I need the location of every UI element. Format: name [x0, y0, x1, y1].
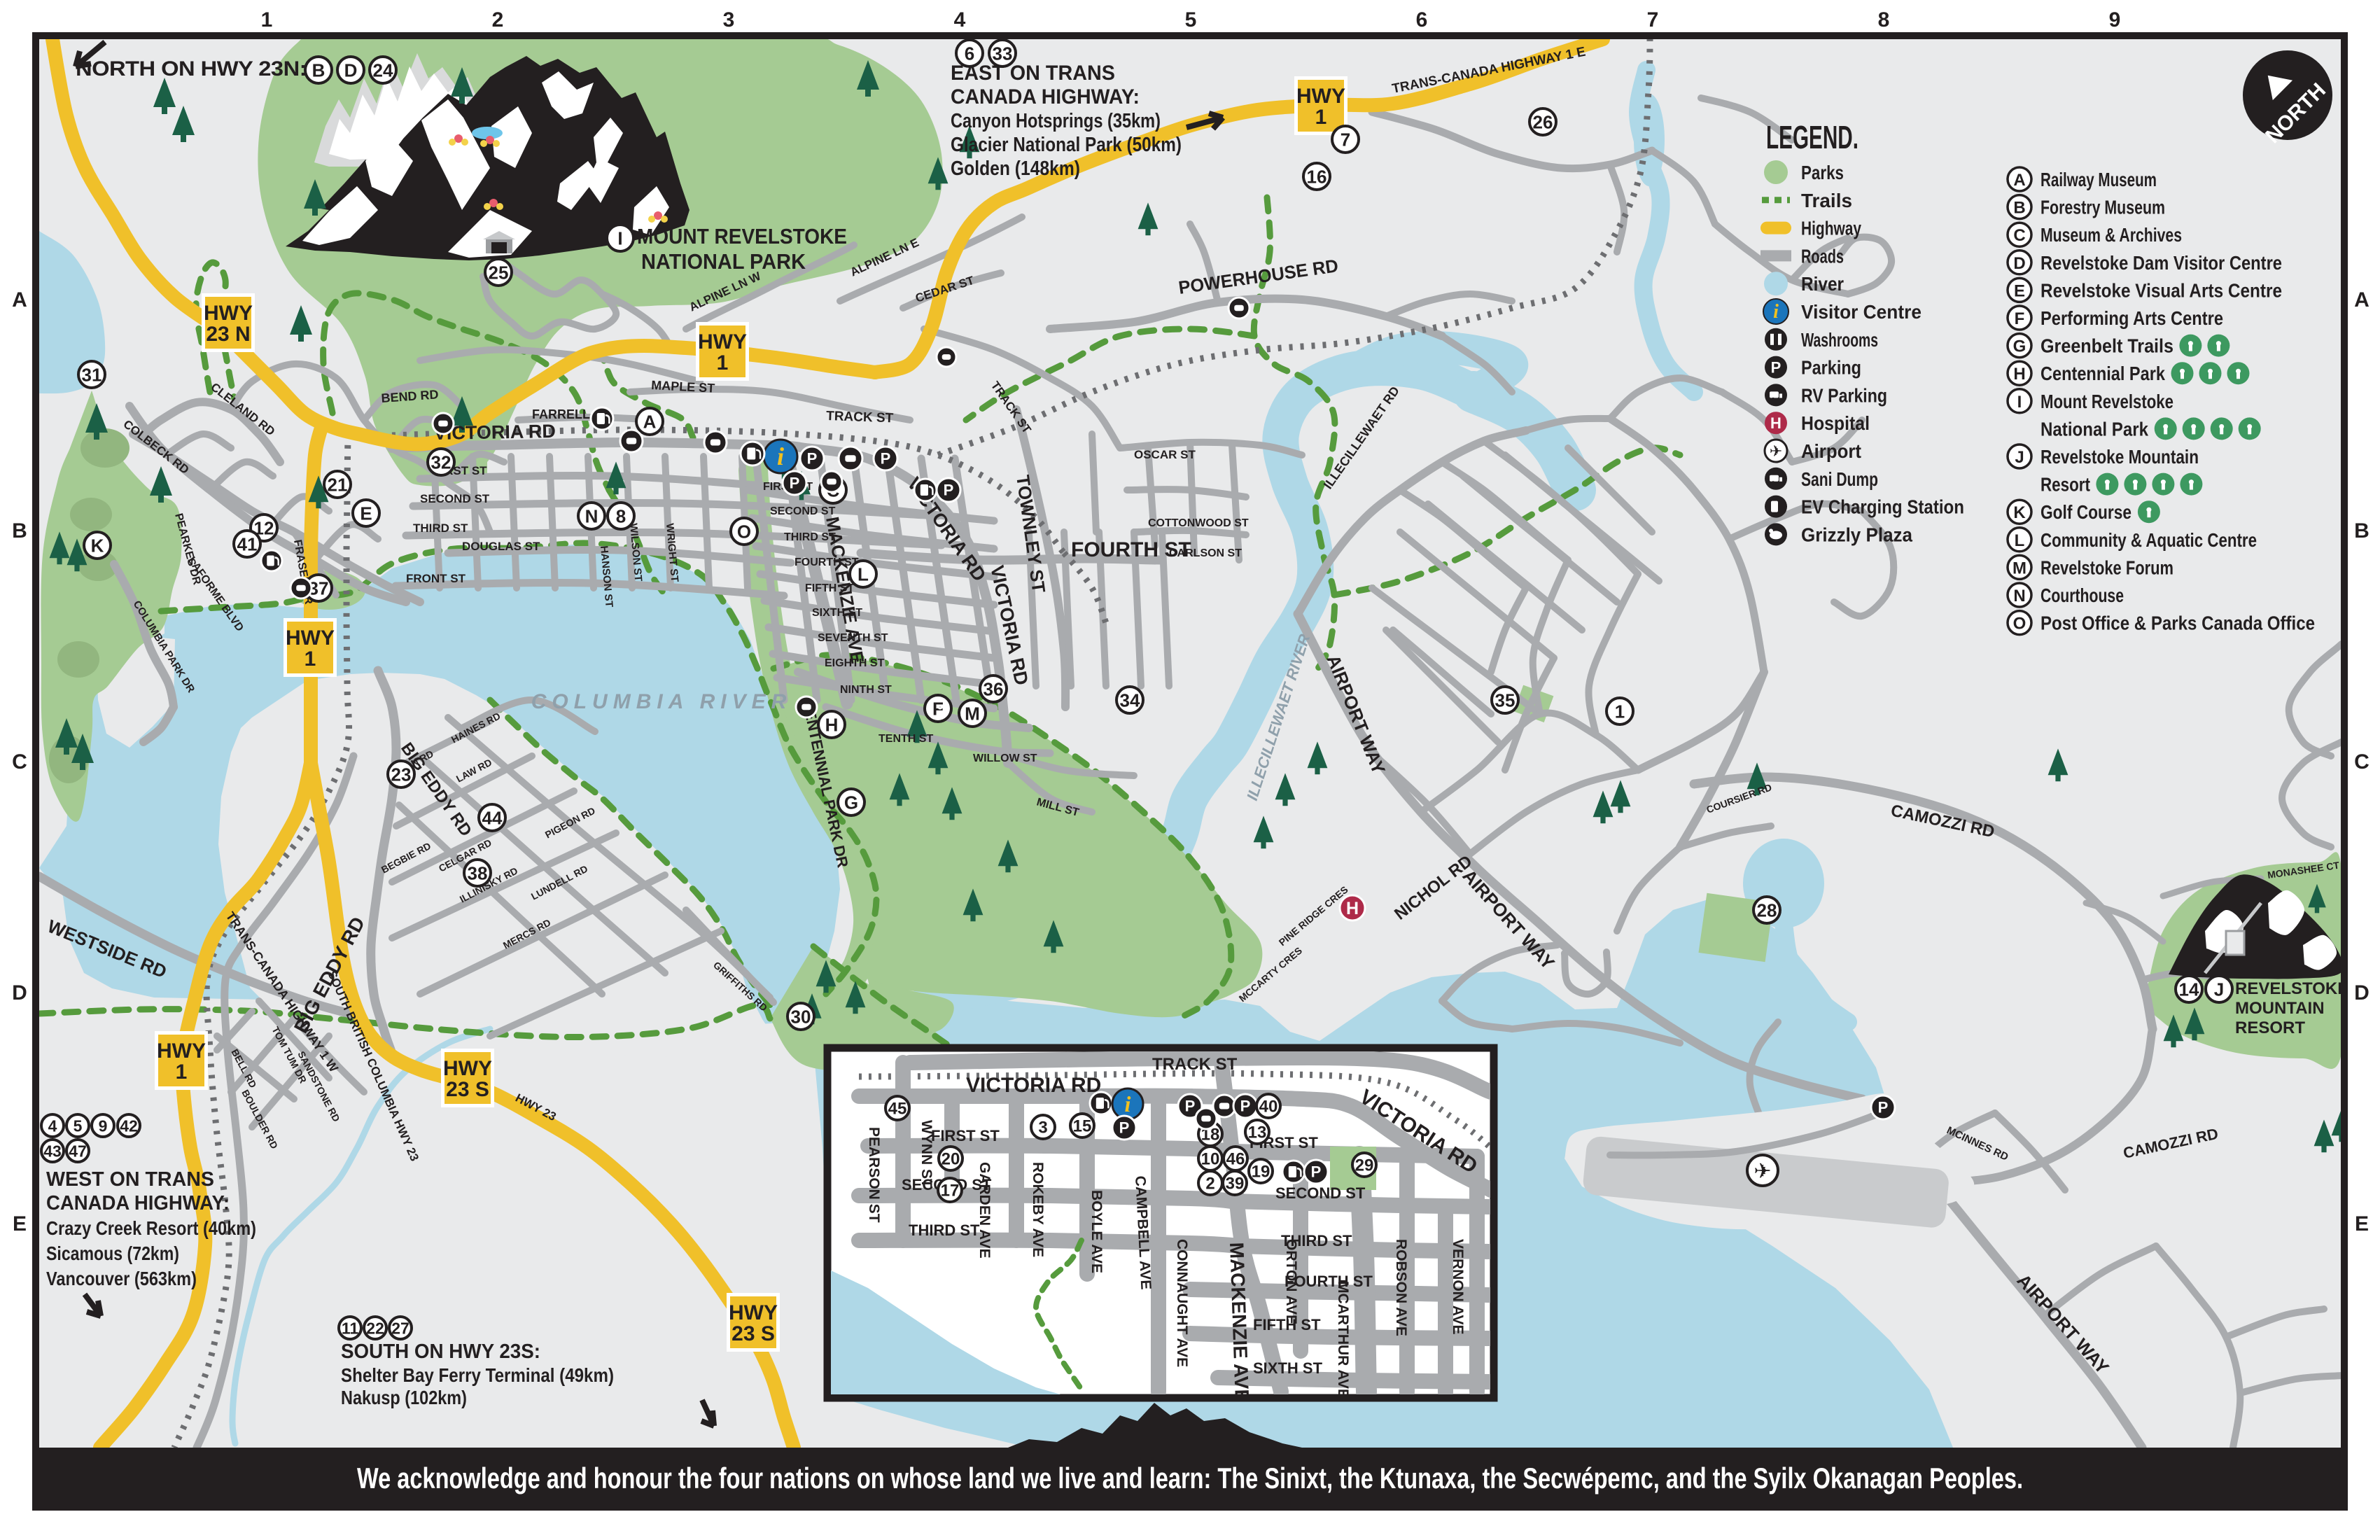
svg-text:Vancouver (563km): Vancouver (563km) — [46, 1268, 197, 1289]
svg-text:A: A — [12, 288, 27, 311]
svg-text:2: 2 — [492, 8, 504, 31]
svg-text:22: 22 — [366, 1319, 384, 1337]
svg-text:G: G — [844, 792, 858, 813]
svg-text:Highway: Highway — [1801, 218, 1861, 239]
svg-text:Grizzly Plaza: Grizzly Plaza — [1801, 524, 1912, 545]
svg-text:M: M — [2012, 559, 2026, 577]
svg-text:P: P — [1878, 1099, 1889, 1116]
svg-text:7: 7 — [1647, 8, 1659, 31]
svg-text:29: 29 — [1355, 1156, 1374, 1175]
svg-text:J: J — [2015, 448, 2024, 467]
svg-text:16: 16 — [1307, 166, 1327, 187]
svg-text:B: B — [12, 519, 27, 542]
svg-text:O: O — [737, 521, 751, 542]
svg-text:38: 38 — [468, 862, 488, 883]
svg-text:✈: ✈ — [1753, 1160, 1771, 1183]
svg-text:10: 10 — [1201, 1150, 1220, 1169]
svg-text:Sicamous (72km): Sicamous (72km) — [46, 1242, 179, 1264]
svg-text:27: 27 — [391, 1319, 409, 1337]
svg-text:Revelstoke Visual Arts Centre: Revelstoke Visual Arts Centre — [2040, 279, 2282, 301]
svg-text:Centennial Park: Centennial Park — [2040, 363, 2165, 384]
svg-text:Hospital: Hospital — [1801, 412, 1870, 434]
svg-text:D: D — [344, 59, 358, 80]
svg-text:D: D — [2013, 254, 2025, 273]
svg-text:Mount Revelstoke: Mount Revelstoke — [2040, 391, 2173, 412]
svg-text:N: N — [2013, 587, 2025, 605]
svg-text:14: 14 — [2179, 979, 2199, 1000]
svg-text:HWY: HWY — [286, 626, 335, 650]
svg-text:EV Charging Station: EV Charging Station — [1801, 496, 1964, 518]
svg-text:35: 35 — [1495, 689, 1515, 710]
svg-text:A: A — [643, 411, 657, 432]
svg-text:Golf Course: Golf Course — [2040, 501, 2131, 523]
svg-text:B: B — [2354, 519, 2369, 542]
svg-text:Sani Dump: Sani Dump — [1801, 468, 1878, 490]
svg-text:3: 3 — [723, 8, 735, 31]
svg-text:ROBSON AVE: ROBSON AVE — [1393, 1239, 1409, 1336]
svg-text:VICTORIA RD: VICTORIA RD — [966, 1074, 1101, 1097]
svg-text:MOUNT REVELSTOKE: MOUNT REVELSTOKE — [637, 224, 847, 248]
svg-text:National Park: National Park — [2040, 418, 2148, 440]
svg-text:GARDEN AVE: GARDEN AVE — [976, 1162, 993, 1259]
svg-text:K: K — [2013, 503, 2026, 522]
svg-text:SOUTH ON HWY 23S:: SOUTH ON HWY 23S: — [341, 1340, 540, 1363]
svg-text:FRONT ST: FRONT ST — [406, 572, 466, 585]
svg-text:15: 15 — [1073, 1117, 1092, 1136]
svg-text:Airport: Airport — [1801, 440, 1861, 462]
svg-text:Trails: Trails — [1801, 190, 1852, 211]
svg-text:Parks: Parks — [1801, 162, 1844, 183]
svg-text:5: 5 — [73, 1116, 83, 1135]
svg-text:H: H — [2013, 365, 2025, 384]
svg-text:P: P — [1311, 1163, 1322, 1181]
svg-text:1: 1 — [176, 1060, 188, 1084]
svg-text:PEARSON ST: PEARSON ST — [866, 1127, 882, 1223]
svg-text:44: 44 — [482, 807, 503, 828]
svg-text:B: B — [312, 59, 325, 80]
svg-text:Parking: Parking — [1801, 357, 1861, 379]
svg-text:VERNON AVE: VERNON AVE — [1450, 1239, 1466, 1335]
svg-text:SECOND ST: SECOND ST — [770, 505, 836, 517]
svg-text:26: 26 — [1533, 111, 1553, 132]
svg-text:TENTH ST: TENTH ST — [878, 733, 933, 745]
svg-text:HWY: HWY — [698, 330, 747, 353]
svg-text:Resort: Resort — [2040, 474, 2090, 496]
svg-text:39: 39 — [1226, 1175, 1245, 1193]
svg-text:Forestry Museum: Forestry Museum — [2040, 197, 2165, 218]
svg-text:B: B — [2013, 199, 2025, 218]
svg-text:HWY: HWY — [1296, 85, 1345, 108]
svg-text:9: 9 — [99, 1116, 108, 1135]
svg-text:23: 23 — [391, 764, 412, 785]
svg-text:L: L — [2015, 531, 2025, 550]
svg-text:COTTONWOOD ST: COTTONWOOD ST — [1148, 517, 1249, 529]
svg-text:FIRST ST: FIRST ST — [931, 1127, 1000, 1144]
svg-text:FIFTH ST: FIFTH ST — [805, 582, 854, 594]
svg-text:5: 5 — [1185, 8, 1197, 31]
svg-text:LEGEND.: LEGEND. — [1766, 119, 1858, 155]
svg-text:P: P — [1119, 1119, 1130, 1137]
svg-text:HWY: HWY — [729, 1301, 778, 1324]
svg-text:1: 1 — [1315, 106, 1327, 129]
svg-text:E: E — [360, 503, 372, 524]
svg-text:THIRD ST: THIRD ST — [413, 521, 468, 535]
svg-text:46: 46 — [1226, 1150, 1245, 1169]
svg-text:47: 47 — [69, 1142, 87, 1160]
svg-text:SIXTH ST: SIXTH ST — [1253, 1359, 1323, 1377]
svg-text:19: 19 — [1252, 1163, 1270, 1182]
svg-text:E: E — [2355, 1212, 2369, 1235]
svg-text:Washrooms: Washrooms — [1801, 329, 1878, 351]
svg-text:N: N — [585, 505, 598, 526]
svg-text:Nakusp (102km): Nakusp (102km) — [341, 1387, 467, 1408]
svg-text:REVELSTOKE: REVELSTOKE — [2235, 979, 2348, 998]
svg-text:MOUNTAIN: MOUNTAIN — [2235, 999, 2325, 1018]
svg-text:M: M — [965, 703, 980, 724]
svg-text:42: 42 — [120, 1116, 138, 1135]
svg-text:45: 45 — [888, 1100, 907, 1119]
svg-text:1: 1 — [1615, 701, 1625, 722]
svg-text:THIRD ST: THIRD ST — [784, 531, 836, 543]
svg-text:COLUMBIA RIVER: COLUMBIA RIVER — [531, 690, 792, 713]
svg-text:WEST ON TRANS: WEST ON TRANS — [46, 1168, 214, 1191]
svg-text:Greenbelt Trails: Greenbelt Trails — [2040, 335, 2173, 357]
svg-text:36: 36 — [983, 678, 1004, 699]
svg-text:TRACK ST: TRACK ST — [826, 409, 894, 426]
svg-text:Golden (148km): Golden (148km) — [951, 157, 1080, 180]
svg-text:SECOND ST: SECOND ST — [420, 492, 490, 505]
svg-text:WYNN ST: WYNN ST — [918, 1120, 934, 1188]
svg-text:Glacier National Park (50km): Glacier National Park (50km) — [951, 134, 1182, 156]
svg-text:Railway Museum: Railway Museum — [2040, 169, 2157, 190]
svg-text:6: 6 — [965, 43, 974, 64]
svg-text:C: C — [12, 750, 27, 773]
svg-text:I: I — [617, 227, 622, 248]
svg-text:Community & Aquatic Centre: Community & Aquatic Centre — [2040, 529, 2257, 551]
svg-text:A: A — [2354, 288, 2369, 311]
svg-text:C: C — [2013, 226, 2025, 245]
svg-text:CONNAUGHT AVE: CONNAUGHT AVE — [1174, 1239, 1190, 1367]
svg-text:Museum & Archives: Museum & Archives — [2040, 224, 2182, 246]
svg-text:17: 17 — [941, 1182, 960, 1200]
svg-text:Revelstoke Dam Visitor Centre: Revelstoke Dam Visitor Centre — [2040, 252, 2282, 274]
svg-text:C: C — [2354, 750, 2369, 773]
svg-text:E: E — [2014, 281, 2025, 300]
svg-text:CANADA HIGHWAY:: CANADA HIGHWAY: — [951, 85, 1140, 108]
svg-text:River: River — [1801, 273, 1844, 295]
svg-text:23 N: 23 N — [206, 323, 250, 346]
svg-text:ORTON AVE: ORTON AVE — [1283, 1239, 1299, 1324]
svg-text:21: 21 — [328, 474, 348, 495]
svg-text:TRACK ST: TRACK ST — [1152, 1055, 1238, 1074]
svg-text:Canyon Hotsprings (35km): Canyon Hotsprings (35km) — [951, 110, 1161, 132]
svg-text:D: D — [2354, 981, 2369, 1004]
svg-text:Roads: Roads — [1801, 245, 1844, 267]
svg-text:We acknowledge and honour the: We acknowledge and honour the four natio… — [357, 1462, 2023, 1494]
svg-text:K: K — [91, 535, 104, 556]
svg-text:28: 28 — [1757, 899, 1777, 920]
svg-text:NORTH ON HWY 23N:: NORTH ON HWY 23N: — [76, 57, 307, 80]
svg-text:E: E — [13, 1212, 27, 1235]
svg-text:11: 11 — [342, 1319, 359, 1337]
svg-text:6: 6 — [1416, 8, 1428, 31]
svg-text:NATIONAL PARK: NATIONAL PARK — [641, 249, 806, 274]
svg-text:34: 34 — [1120, 689, 1140, 710]
svg-text:3: 3 — [1038, 1119, 1047, 1137]
svg-text:FOURTH ST: FOURTH ST — [794, 556, 859, 568]
svg-text:4: 4 — [954, 8, 966, 31]
svg-text:THIRD ST: THIRD ST — [909, 1221, 980, 1239]
svg-text:WILLOW ST: WILLOW ST — [973, 752, 1037, 764]
svg-text:1: 1 — [304, 647, 316, 671]
svg-text:Post Office & Parks Canada Off: Post Office & Parks Canada Office — [2040, 612, 2315, 634]
svg-text:OSCAR ST: OSCAR ST — [1134, 448, 1196, 461]
svg-text:4: 4 — [48, 1116, 57, 1135]
svg-text:O: O — [2013, 615, 2026, 633]
svg-text:G: G — [2013, 337, 2026, 356]
svg-text:P: P — [944, 482, 954, 499]
svg-text:RV Parking: RV Parking — [1801, 384, 1887, 406]
svg-text:Visitor Centre: Visitor Centre — [1801, 301, 1921, 323]
svg-text:Shelter Bay Ferry Terminal (49: Shelter Bay Ferry Terminal (49km) — [341, 1364, 614, 1386]
svg-text:P: P — [1240, 1098, 1251, 1115]
svg-text:Revelstoke Forum: Revelstoke Forum — [2040, 556, 2173, 578]
svg-text:H: H — [1770, 414, 1781, 432]
svg-text:Revelstoke Mountain: Revelstoke Mountain — [2040, 446, 2199, 468]
svg-text:RESORT: RESORT — [2235, 1018, 2305, 1037]
svg-text:i: i — [777, 442, 784, 470]
svg-text:23 S: 23 S — [446, 1078, 489, 1101]
svg-text:✈: ✈ — [1770, 442, 1782, 460]
svg-text:i: i — [1773, 301, 1779, 323]
svg-text:BOYLE AVE: BOYLE AVE — [1088, 1190, 1105, 1273]
svg-text:30: 30 — [791, 1006, 811, 1027]
svg-text:SECOND ST: SECOND ST — [1275, 1184, 1366, 1202]
svg-text:32: 32 — [431, 451, 451, 472]
svg-text:P: P — [807, 450, 818, 468]
svg-text:SEVENTH ST: SEVENTH ST — [818, 632, 888, 644]
svg-text:2: 2 — [1205, 1175, 1214, 1193]
svg-text:MCARTHUR AVE: MCARTHUR AVE — [1335, 1281, 1351, 1399]
svg-text:CANADA HIGHWAY:: CANADA HIGHWAY: — [46, 1192, 230, 1214]
svg-text:ROKEBY AVE: ROKEBY AVE — [1030, 1162, 1046, 1257]
svg-text:25: 25 — [489, 262, 509, 283]
svg-text:F: F — [2015, 309, 2025, 328]
svg-text:40: 40 — [1259, 1098, 1278, 1116]
svg-text:P: P — [1185, 1098, 1196, 1115]
svg-text:L: L — [857, 563, 869, 584]
svg-text:J: J — [2214, 979, 2224, 1000]
svg-text:D: D — [12, 981, 27, 1004]
svg-text:7: 7 — [1340, 129, 1350, 150]
svg-text:24: 24 — [373, 59, 393, 80]
svg-text:A: A — [2013, 171, 2025, 190]
svg-text:1: 1 — [717, 351, 729, 374]
svg-text:H: H — [825, 714, 839, 735]
svg-text:SIXTH ST: SIXTH ST — [812, 607, 862, 619]
svg-text:H: H — [1346, 899, 1359, 918]
svg-text:Courthouse: Courthouse — [2040, 584, 2124, 606]
svg-text:Crazy Creek Resort (40km): Crazy Creek Resort (40km) — [46, 1217, 256, 1239]
svg-text:8: 8 — [1878, 8, 1890, 31]
svg-text:20: 20 — [941, 1150, 960, 1169]
svg-text:HWY: HWY — [204, 302, 253, 325]
svg-text:EIGHTH ST: EIGHTH ST — [825, 657, 885, 669]
svg-text:1: 1 — [261, 8, 273, 31]
svg-text:HWY: HWY — [157, 1039, 206, 1063]
svg-text:P: P — [790, 475, 800, 492]
svg-text:HWY: HWY — [443, 1057, 492, 1080]
svg-text:CARLSON ST: CARLSON ST — [1169, 547, 1242, 559]
svg-text:41: 41 — [237, 533, 258, 554]
svg-text:I: I — [2017, 393, 2022, 412]
svg-text:P: P — [1771, 359, 1781, 377]
svg-text:P: P — [881, 450, 891, 468]
svg-text:9: 9 — [2109, 8, 2121, 31]
svg-text:8: 8 — [616, 505, 626, 526]
svg-text:33: 33 — [993, 43, 1013, 64]
svg-text:Performing Arts Centre: Performing Arts Centre — [2040, 307, 2223, 329]
svg-text:13: 13 — [1248, 1123, 1267, 1142]
svg-text:i: i — [1125, 1091, 1131, 1116]
svg-text:23 S: 23 S — [731, 1322, 775, 1345]
svg-text:DOUGLAS ST: DOUGLAS ST — [462, 540, 540, 553]
svg-text:NINTH ST: NINTH ST — [840, 684, 892, 696]
svg-text:31: 31 — [82, 364, 102, 385]
svg-text:43: 43 — [43, 1142, 62, 1160]
